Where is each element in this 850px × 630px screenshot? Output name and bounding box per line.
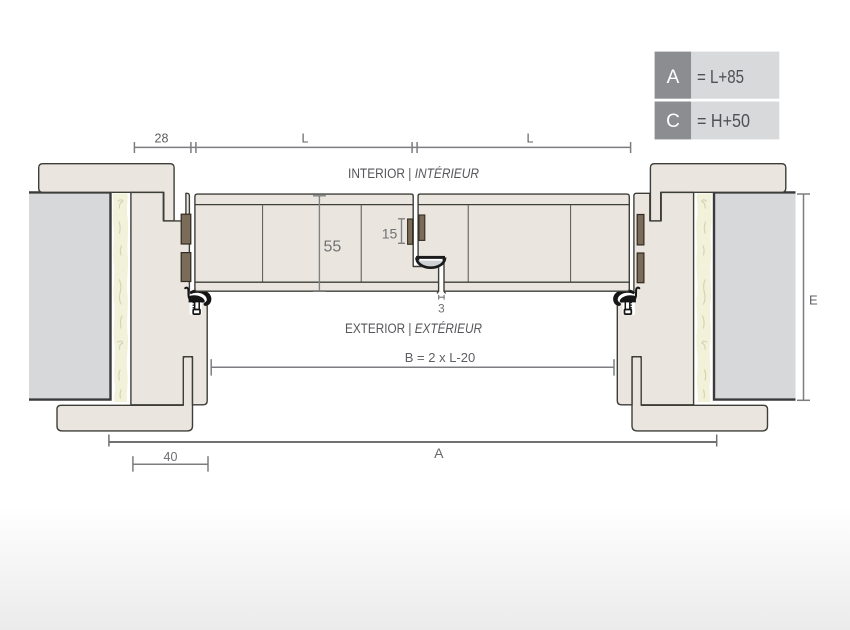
svg-text:L: L <box>302 132 309 146</box>
svg-text:B = 2 x L-20: B = 2 x L-20 <box>405 350 475 365</box>
svg-text:INTERIOR | INTÉRIEUR: INTERIOR | INTÉRIEUR <box>348 166 479 181</box>
svg-text:C: C <box>666 111 680 132</box>
svg-text:28: 28 <box>155 132 169 146</box>
svg-text:A: A <box>434 445 444 461</box>
svg-text:15: 15 <box>382 226 398 242</box>
svg-text:= H+50: = H+50 <box>697 111 750 131</box>
svg-text:40: 40 <box>164 450 178 464</box>
svg-text:= L+85: = L+85 <box>697 67 744 87</box>
svg-text:L: L <box>527 132 534 146</box>
svg-text:E: E <box>809 293 818 308</box>
svg-text:EXTERIOR | EXTÉRIEUR: EXTERIOR | EXTÉRIEUR <box>345 321 482 336</box>
svg-text:55: 55 <box>324 239 342 256</box>
svg-text:3: 3 <box>438 301 445 315</box>
svg-text:A: A <box>667 67 680 88</box>
